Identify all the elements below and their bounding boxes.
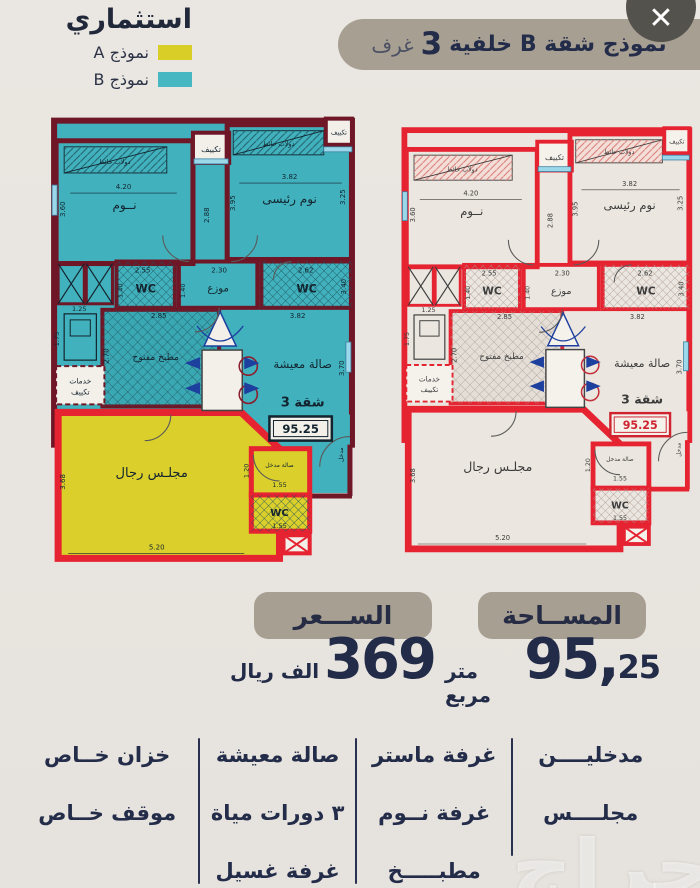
svg-text:1.55: 1.55	[272, 522, 287, 530]
svg-text:2.55: 2.55	[482, 269, 497, 277]
svg-text:2.62: 2.62	[638, 269, 653, 277]
svg-text:1.55: 1.55	[272, 481, 287, 489]
svg-text:3.82: 3.82	[630, 313, 645, 321]
svg-text:3.68: 3.68	[58, 474, 67, 490]
svg-text:3.60: 3.60	[58, 201, 67, 217]
svg-text:1.25: 1.25	[422, 307, 436, 314]
svg-text:WC: WC	[270, 508, 288, 519]
svg-text:2.62: 2.62	[298, 266, 314, 275]
svg-text:شقة 3: شقة 3	[621, 391, 663, 406]
legend-title: استثماري	[58, 4, 192, 35]
legend-items: نموذج Aنموذج B	[58, 43, 192, 89]
svg-text:3.60: 3.60	[409, 207, 417, 222]
features-column-2: صالة معيشة٣ دورات مياةغرفة غسيل	[200, 726, 355, 888]
svg-text:2.30: 2.30	[555, 269, 570, 277]
svg-text:5.20: 5.20	[495, 534, 510, 542]
watermark: حراج	[511, 824, 700, 888]
svg-text:موزع: موزع	[207, 284, 228, 295]
feature-item: غرفة ماستر	[357, 726, 512, 784]
svg-text:3.25: 3.25	[338, 189, 347, 205]
svg-text:3.95: 3.95	[572, 202, 580, 217]
svg-text:95.25: 95.25	[623, 419, 658, 432]
svg-text:1.55: 1.55	[613, 475, 627, 482]
svg-text:صالة معيشة: صالة معيشة	[273, 357, 332, 371]
legend-item-1: نموذج B	[58, 70, 192, 89]
svg-text:مجلـس رجال: مجلـس رجال	[116, 466, 188, 481]
column-divider	[355, 738, 357, 884]
svg-text:1.40: 1.40	[179, 283, 187, 298]
floor-plan-drawing: نــومنوم رئيسىدولاب حائطدولاب حائطتكييفت…	[389, 112, 697, 566]
svg-text:صالة معيشة: صالة معيشة	[614, 357, 670, 370]
floor-plan-model-b-outline: نــومنوم رئيسىدولاب حائطدولاب حائطتكييفت…	[389, 112, 697, 566]
svg-text:WC: WC	[611, 500, 629, 511]
svg-text:مطبخ مفتوح: مطبخ مفتوح	[479, 352, 523, 362]
svg-text:نوم رئيسى: نوم رئيسى	[262, 192, 317, 207]
features-column-1: غرفة ماسترغرفة نــوممطبـــــخ	[357, 726, 512, 888]
features-column-3: خزان خــاصموقف خــاص	[16, 726, 198, 842]
svg-text:WC: WC	[136, 283, 156, 296]
title-banner-room-count: 3	[421, 26, 443, 62]
svg-text:2.70: 2.70	[101, 348, 110, 364]
svg-text:3.82: 3.82	[622, 180, 637, 188]
svg-text:2.70: 2.70	[450, 348, 458, 363]
area-number: 95,	[524, 632, 617, 688]
svg-text:دولاب حائط: دولاب حائط	[447, 167, 478, 174]
svg-text:3.68: 3.68	[409, 468, 417, 483]
svg-text:1.40: 1.40	[525, 286, 532, 300]
legend-item-label: نموذج A	[94, 43, 149, 62]
svg-text:1.20: 1.20	[242, 464, 250, 479]
svg-text:5.20: 5.20	[149, 542, 165, 551]
svg-text:نوم رئيسى: نوم رئيسى	[604, 198, 656, 213]
price-number: 369	[324, 632, 435, 688]
feature-item: غرفة غسيل	[200, 842, 355, 888]
legend-swatch	[158, 45, 192, 60]
price-unit: الف ريال	[230, 659, 319, 683]
svg-text:مطبخ مفتوح: مطبخ مفتوح	[133, 353, 180, 363]
area-unit: متر مربع	[445, 659, 519, 707]
legend-item-label: نموذج B	[94, 70, 150, 89]
svg-text:95.25: 95.25	[282, 422, 319, 436]
svg-text:دولاب حائط: دولاب حائط	[262, 140, 294, 148]
svg-text:تكييف: تكييف	[545, 153, 564, 162]
feature-item: صالة معيشة	[200, 726, 355, 784]
feature-item: موقف خــاص	[16, 784, 198, 842]
svg-text:تكييف: تكييف	[421, 385, 439, 394]
svg-text:1.40: 1.40	[465, 286, 472, 300]
svg-text:تكييف: تكييف	[331, 129, 347, 137]
feature-item: ٣ دورات مياة	[200, 784, 355, 842]
svg-text:WC: WC	[482, 286, 502, 298]
floor-plan-model-b-colored: نــومنوم رئيسىدولاب حائطدولاب حائطتكييفت…	[38, 112, 360, 566]
svg-text:دولاب حائط: دولاب حائط	[604, 149, 635, 156]
svg-text:4.20: 4.20	[463, 190, 478, 198]
svg-text:WC: WC	[297, 283, 317, 296]
feature-item: مطبـــــخ	[357, 842, 512, 888]
floor-plan-drawing: نــومنوم رئيسىدولاب حائطدولاب حائطتكييفت…	[38, 112, 360, 566]
svg-text:مدخل: مدخل	[338, 447, 345, 462]
svg-text:تكييف: تكييف	[201, 145, 221, 154]
svg-text:نــوم: نــوم	[460, 204, 483, 219]
svg-text:خدمات: خدمات	[419, 374, 440, 383]
svg-text:مدخل: مدخل	[677, 443, 683, 457]
svg-text:4.20: 4.20	[116, 182, 132, 191]
svg-text:موزع: موزع	[551, 286, 572, 297]
svg-text:2.30: 2.30	[211, 266, 227, 275]
svg-text:تكييف: تكييف	[669, 139, 685, 146]
svg-text:تكييف: تكييف	[71, 387, 90, 396]
svg-text:2.55: 2.55	[135, 266, 151, 275]
price-value: الف ريال 369	[225, 632, 435, 688]
title-banner-suffix: غرف	[371, 33, 413, 57]
svg-text:خدمات: خدمات	[69, 376, 91, 385]
feature-item: مدخليــــن	[513, 726, 668, 784]
svg-text:مجلـس رجال: مجلـس رجال	[463, 459, 532, 475]
title-banner-text: نموذج شقة B خلفية	[449, 32, 667, 57]
feature-item: خزان خــاص	[16, 726, 198, 784]
svg-text:صالة مدخل: صالة مدخل	[606, 457, 633, 463]
svg-text:3.82: 3.82	[282, 172, 298, 181]
close-icon: ✕	[648, 4, 673, 34]
svg-text:1.25: 1.25	[72, 305, 87, 313]
svg-text:شقة 3: شقة 3	[281, 395, 325, 410]
svg-text:3.25: 3.25	[677, 196, 685, 211]
listing-flyer: استثماري نموذج Aنموذج B نموذج شقة B خلفي…	[0, 0, 700, 888]
svg-text:3.70: 3.70	[337, 360, 346, 376]
svg-text:1.75: 1.75	[404, 332, 411, 346]
legend-item-0: نموذج A	[58, 43, 192, 62]
svg-text:دولاب حائط: دولاب حائط	[98, 158, 130, 166]
svg-text:1.20: 1.20	[585, 458, 592, 472]
svg-text:نــوم: نــوم	[112, 198, 136, 213]
svg-text:3.40: 3.40	[678, 281, 686, 296]
svg-text:2.85: 2.85	[151, 311, 167, 320]
svg-text:WC: WC	[636, 286, 656, 298]
feature-item: غرفة نــوم	[357, 784, 512, 842]
legend: استثماري نموذج Aنموذج B	[58, 4, 192, 89]
svg-text:1.40: 1.40	[117, 283, 125, 298]
svg-text:3.82: 3.82	[290, 311, 306, 320]
svg-text:3.70: 3.70	[676, 359, 684, 374]
legend-swatch	[158, 72, 192, 87]
svg-text:1.75: 1.75	[53, 332, 61, 347]
svg-text:2.88: 2.88	[547, 213, 555, 228]
svg-text:صالة مدخل: صالة مدخل	[265, 462, 294, 469]
svg-text:2.88: 2.88	[202, 207, 211, 223]
svg-text:2.85: 2.85	[497, 313, 512, 321]
area-value: متر مربع 95, 25	[445, 632, 660, 707]
svg-text:3.40: 3.40	[339, 279, 348, 295]
svg-text:1.55: 1.55	[613, 515, 627, 522]
svg-text:3.95: 3.95	[228, 195, 237, 211]
area-number-fraction: 25	[617, 648, 660, 686]
